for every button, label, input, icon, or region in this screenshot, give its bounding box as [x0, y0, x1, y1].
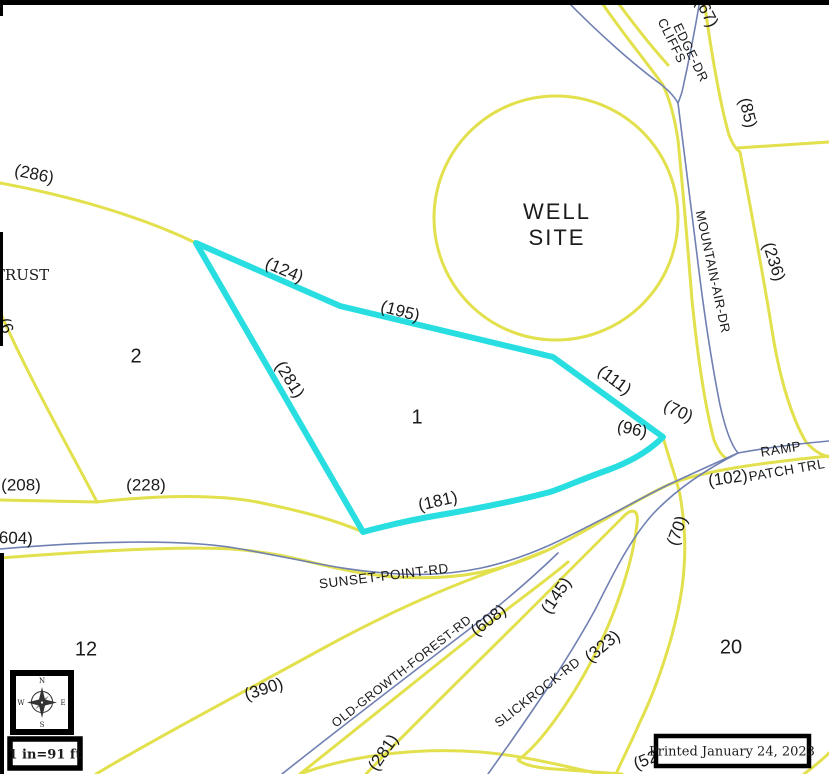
frame-left-lower [0, 553, 4, 774]
parcel-number-label: 1 [411, 406, 422, 428]
boundary-85-branch [737, 142, 829, 148]
frame-top [0, 0, 829, 5]
road-cliffs-edge-dr [566, 0, 678, 103]
dimension-label: (286) [13, 161, 56, 188]
dimension-label: (608) [467, 600, 510, 639]
dimension-label: (390) [242, 674, 286, 704]
compass-e: E [60, 699, 65, 707]
printed-date-box: Printed January 24, 2023 [649, 736, 815, 766]
boundary-286 [0, 183, 196, 243]
boundary-parcel2-west [0, 312, 97, 502]
printed-date-text: Printed January 24, 2023 [649, 745, 815, 760]
frame-left-upper [0, 0, 3, 16]
boundary-208-228 [0, 497, 363, 533]
scale-box: 1 in=91 ft [8, 739, 81, 768]
well-site-label-line2: SITE [529, 225, 586, 250]
dimension-label: (228) [126, 475, 166, 494]
dimension-label: (70) [661, 396, 696, 426]
owner-trust-label: TRUST [0, 266, 49, 284]
parcel-number-label: 12 [75, 638, 97, 660]
dimension-label: (208) [1, 475, 41, 494]
boundary-70-east-of-parcel [616, 437, 685, 774]
highlighted-parcel-boundary[interactable] [196, 243, 663, 532]
compass-s: S [40, 721, 45, 729]
road-name-label: SUNSET-POINT-RD [318, 561, 449, 592]
well-site-label-line1: WELL [523, 199, 591, 224]
road-name-label: SLICKROCK-RD [492, 654, 583, 730]
dimension-label: (323) [581, 626, 624, 666]
compass-n: N [39, 677, 45, 685]
dimension-label: (70) [663, 513, 691, 548]
compass-w: W [17, 699, 25, 707]
parcel-map[interactable]: (286)(124)(195)(281)(111)(70)(96)(181)(2… [0, 0, 829, 774]
frame-left-middle [0, 232, 3, 346]
scale-text: 1 in=91 ft [8, 748, 81, 763]
road-name-label: RAMP [759, 438, 802, 459]
dimension-label: (102) [707, 466, 749, 490]
road-name-label: OLD-GROWTH-FOREST-RD [329, 613, 474, 731]
dimension-label: (85) [735, 96, 761, 130]
dimension-label: (604) [0, 528, 33, 548]
boundary-mountain-air-east [704, 0, 829, 457]
parcel-number-label: 20 [720, 636, 742, 658]
compass-rose: N S W E [13, 673, 71, 732]
parcel-number-label: 2 [130, 345, 141, 367]
